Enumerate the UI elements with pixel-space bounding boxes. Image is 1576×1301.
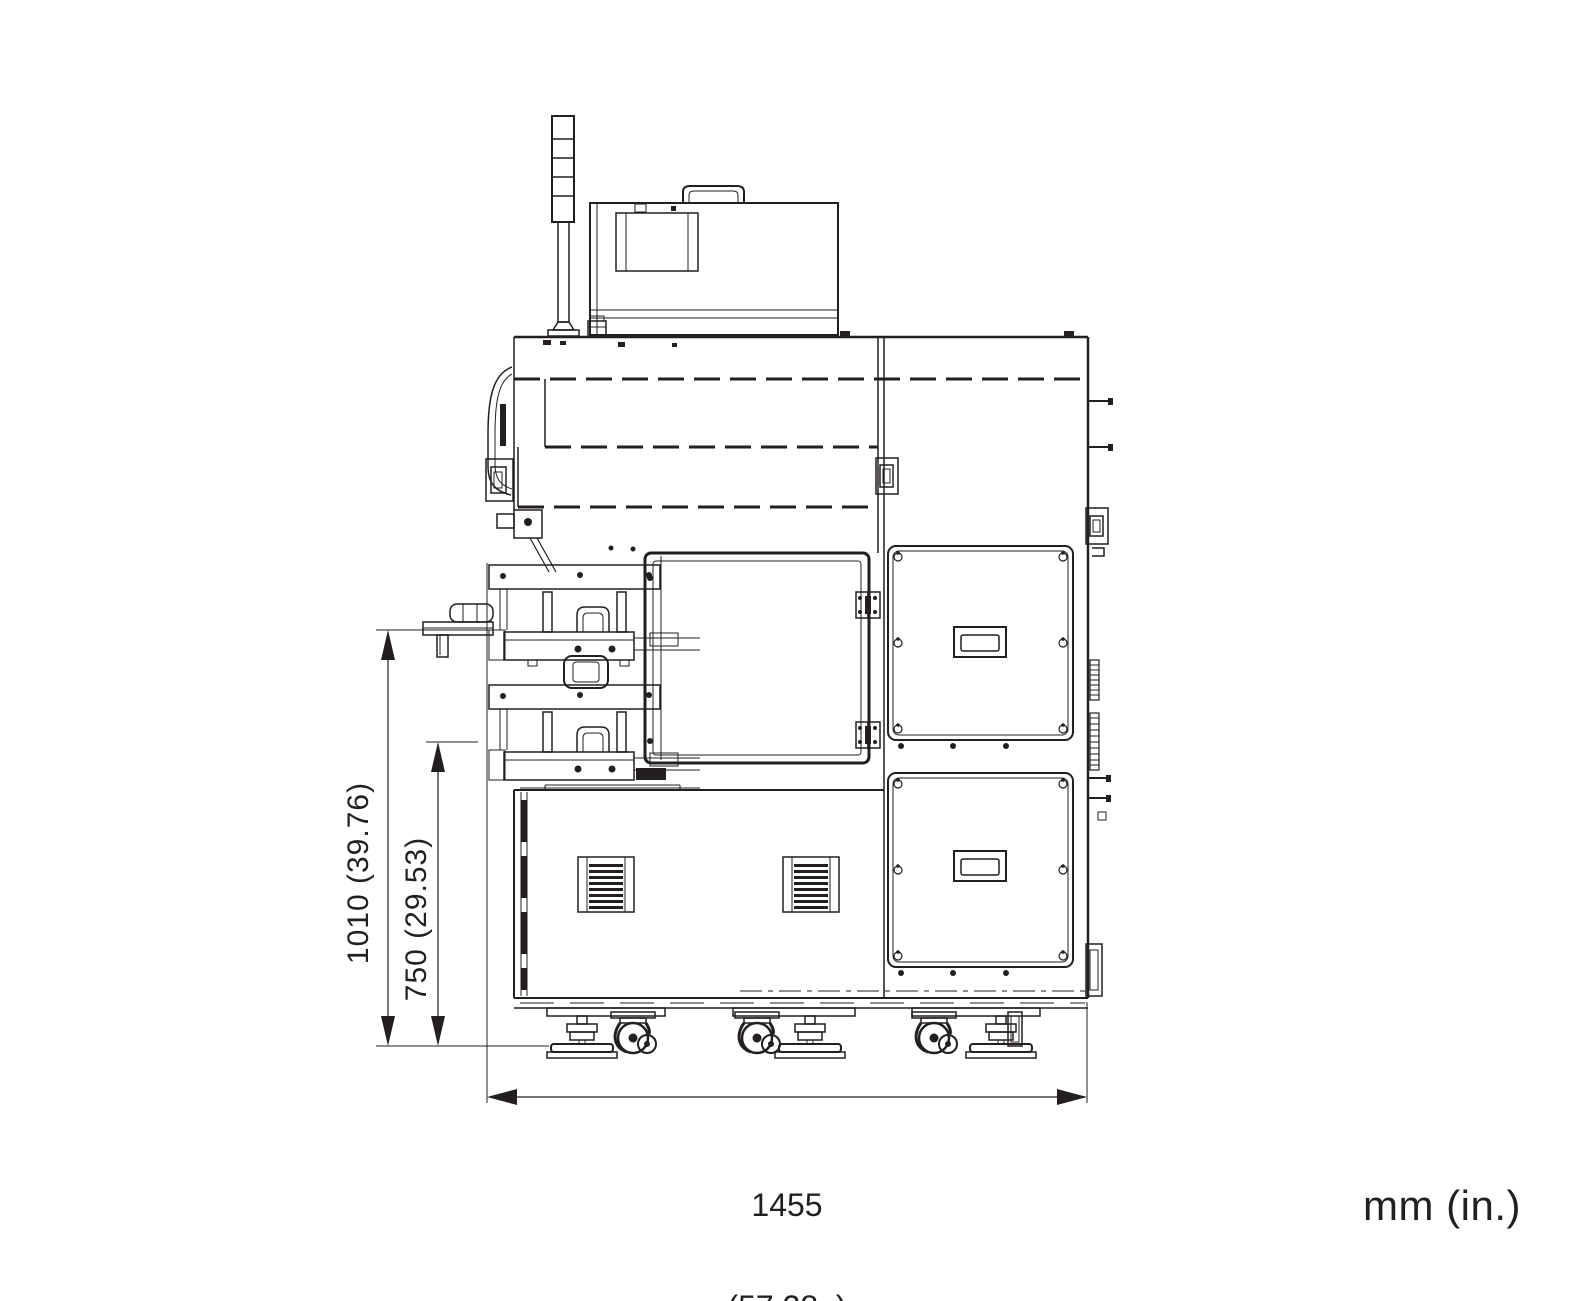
unit-note: mm (in.) xyxy=(1363,1182,1521,1230)
door-hinge-top xyxy=(856,592,880,618)
right-panel-lower xyxy=(888,773,1073,976)
right-panel-upper xyxy=(888,546,1073,749)
dim-line-overall-height xyxy=(381,630,395,1046)
dim-label-overall-height: 1010 (39.76) xyxy=(342,782,376,964)
dim-label-overall-width: 1455 (57.28 ) xyxy=(727,1120,846,1301)
recessed-handle xyxy=(954,851,1006,881)
caster-left xyxy=(611,1012,656,1053)
caster-right xyxy=(912,1012,957,1053)
dim-label-overall-width-inches: (57.28 ) xyxy=(727,1290,846,1301)
console-handle xyxy=(683,186,744,203)
center-door xyxy=(645,553,880,763)
dimension-annotations xyxy=(376,630,1087,1105)
left-curved-door xyxy=(486,367,513,501)
dimension-drawing-page: 1010 (39.76) 750 (29.53) 1455 (57.28 ) m… xyxy=(0,0,1576,1301)
vent-grille-right xyxy=(783,857,839,912)
dim-line-overall-width xyxy=(487,1089,1087,1105)
loader-trays xyxy=(487,563,700,1103)
vent-grille-left xyxy=(578,857,634,912)
loader-tray-1 xyxy=(489,565,700,666)
right-side-fittings xyxy=(1086,398,1113,996)
dim-label-overall-width-mm: 1455 xyxy=(727,1188,846,1222)
machine-line-drawing xyxy=(0,0,1576,1301)
top-console xyxy=(590,186,838,335)
door-hinge-bottom xyxy=(856,722,880,748)
loader-tray-2 xyxy=(489,685,700,780)
base-frame xyxy=(514,998,1088,1016)
caster-center xyxy=(735,1012,780,1053)
recessed-handle xyxy=(954,627,1006,657)
casters xyxy=(611,1012,957,1053)
dim-label-deck-height: 750 (29.53) xyxy=(400,837,434,1001)
